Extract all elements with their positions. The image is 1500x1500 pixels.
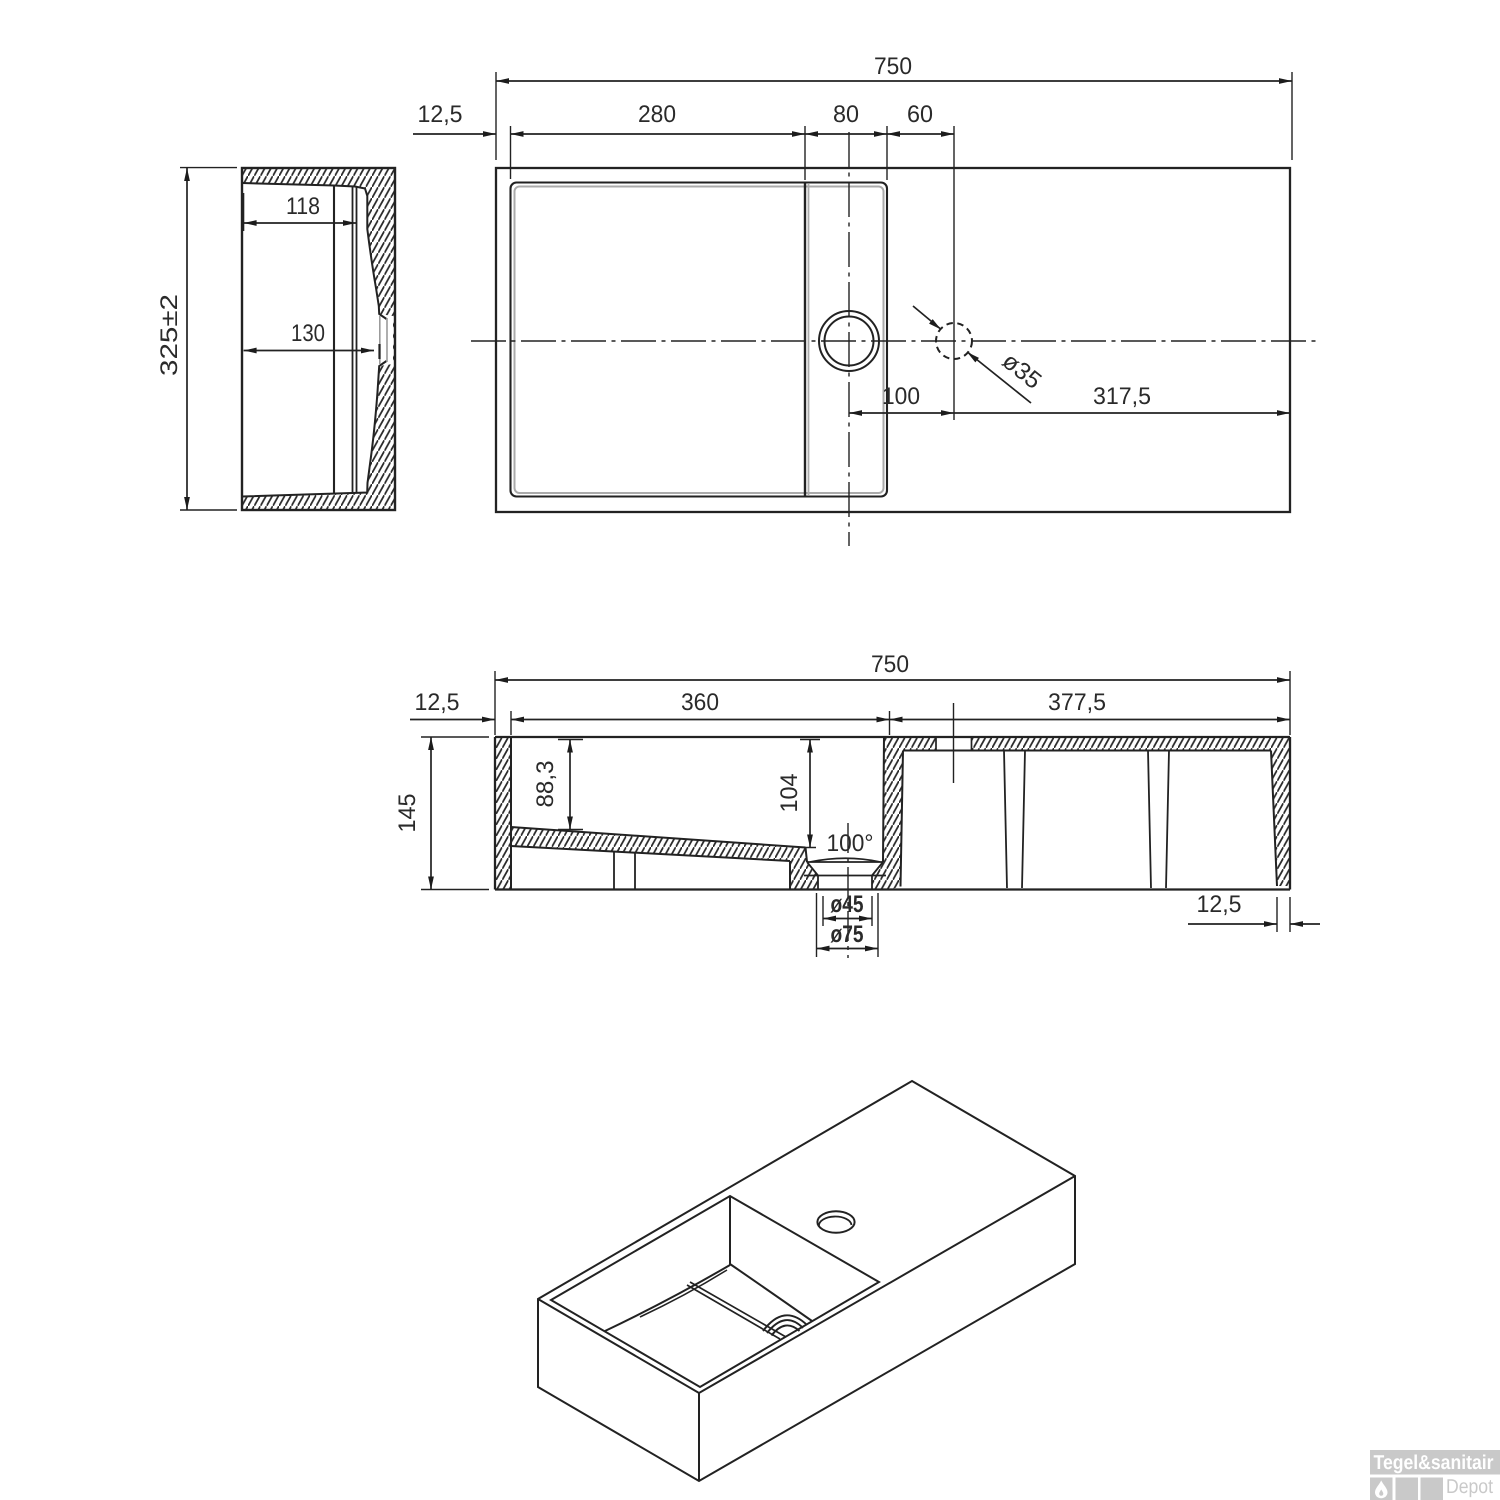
svg-text:325±2: 325±2 [156,294,183,376]
svg-text:Depot: Depot [1446,1476,1493,1498]
svg-text:317,5: 317,5 [1093,383,1151,410]
svg-text:80: 80 [833,101,859,128]
svg-text:750: 750 [874,53,912,80]
svg-text:ø45: ø45 [831,891,864,918]
svg-text:750: 750 [871,651,909,678]
svg-text:377,5: 377,5 [1048,689,1106,716]
svg-text:118: 118 [286,193,320,220]
svg-text:ø75: ø75 [831,921,864,948]
svg-text:145: 145 [394,794,421,833]
svg-text:280: 280 [638,101,676,128]
svg-text:100: 100 [882,383,920,410]
svg-text:60: 60 [907,101,933,128]
svg-text:12,5: 12,5 [415,689,460,716]
svg-text:104: 104 [776,774,803,813]
svg-text:88,3: 88,3 [532,761,559,808]
svg-text:130: 130 [291,320,325,347]
svg-text:360: 360 [681,689,719,716]
svg-text:Tegel&sanitair: Tegel&sanitair [1374,1452,1494,1474]
svg-text:12,5: 12,5 [418,101,463,128]
svg-text:100°: 100° [827,830,874,857]
svg-text:12,5: 12,5 [1197,891,1242,918]
